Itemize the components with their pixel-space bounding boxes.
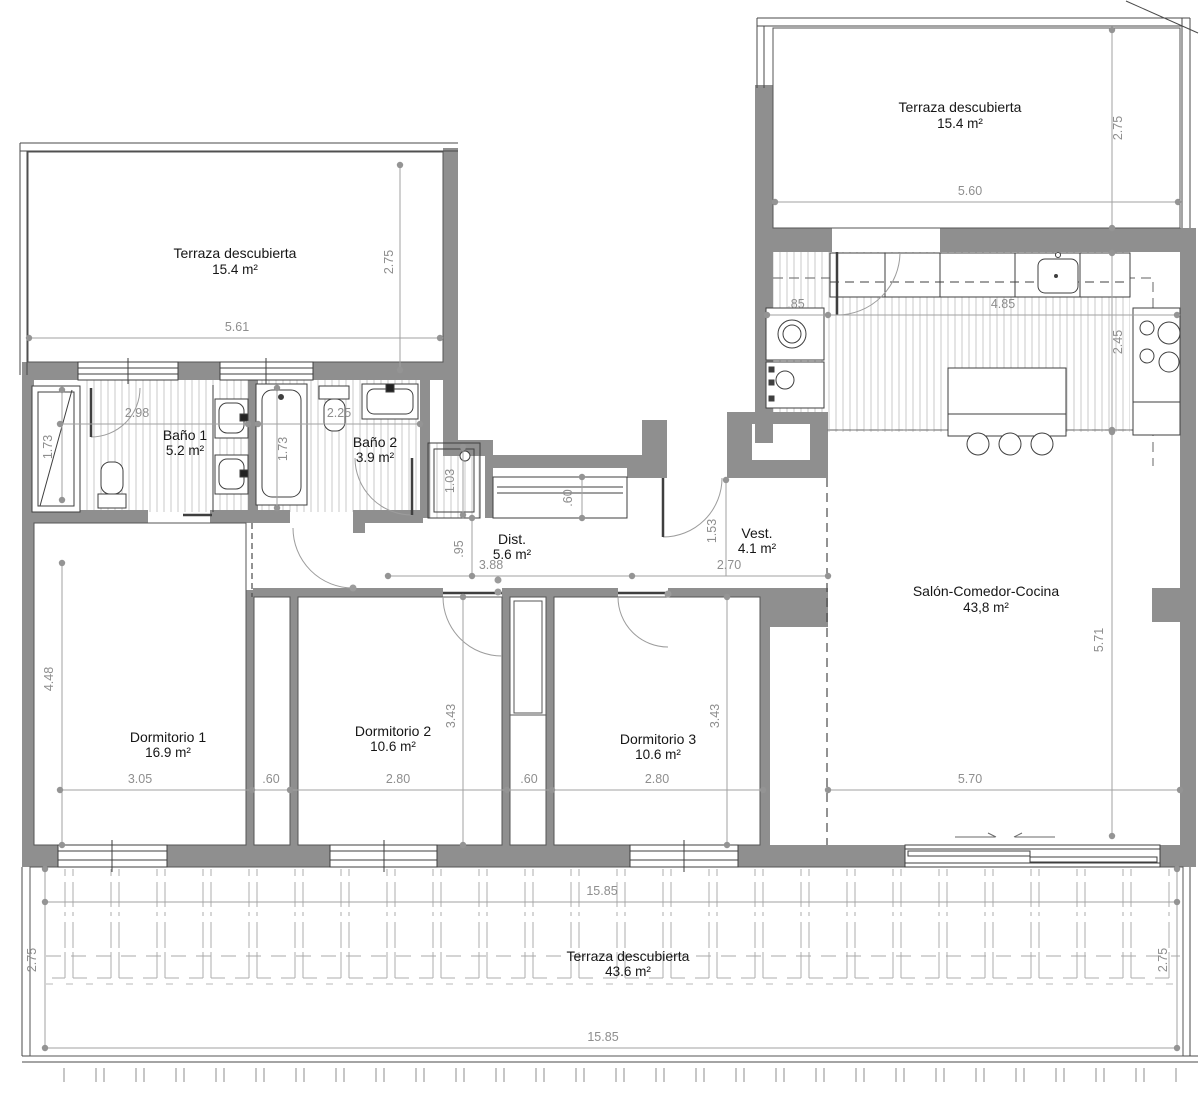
dim-label: 4.48	[42, 667, 56, 691]
dim-label: 15.85	[587, 1030, 618, 1044]
dorm3-door-arc	[618, 597, 668, 647]
svg-text:10.6 m²: 10.6 m²	[370, 739, 416, 754]
dim-label: 1.73	[41, 435, 55, 459]
slide-direction-arrows	[955, 833, 1055, 837]
dormitorio-1-outline	[34, 523, 246, 845]
svg-text:Baño 1: Baño 1	[163, 427, 208, 443]
dim-label: 2.75	[382, 250, 396, 274]
svg-text:Dormitorio 2: Dormitorio 2	[355, 723, 431, 739]
svg-text:5.2 m²: 5.2 m²	[166, 443, 205, 458]
room-label-bano-1: Baño 1 5.2 m²	[163, 427, 208, 458]
dim-label: 2.75	[1156, 948, 1170, 972]
dim-label: 1.53	[705, 519, 719, 543]
dryer-icon	[776, 371, 794, 389]
stool-icon	[967, 433, 989, 455]
dim-label: 2.70	[717, 558, 741, 572]
dim-label: 2.75	[25, 948, 39, 972]
floor-plan-drawing: 5.61 2.75 5.60 2.75 .85 4.85 2.45 2.98 1…	[0, 0, 1200, 1095]
room-label-bano-2: Baño 2 3.9 m²	[353, 434, 398, 465]
closet-2	[510, 597, 546, 845]
dim-label: 3.43	[444, 704, 458, 728]
dim-label: 5.61	[225, 320, 249, 334]
kitchen-counter	[830, 253, 1130, 298]
dim-label: .95	[452, 540, 466, 557]
dim-label: 2.25	[327, 406, 351, 420]
bano2-hall-door-arc	[293, 528, 353, 588]
stove	[1133, 308, 1180, 435]
dim-label: 5.60	[958, 184, 982, 198]
dim-label: 2.80	[386, 772, 410, 786]
room-label-dist: Dist. 5.6 m²	[493, 531, 532, 562]
dorm2-door-arc	[443, 597, 502, 656]
dim-label: 5.71	[1092, 628, 1106, 652]
svg-text:Vest.: Vest.	[741, 525, 772, 541]
window	[330, 840, 437, 872]
dim-label: 2.45	[1111, 330, 1125, 354]
svg-text:Baño 2: Baño 2	[353, 434, 398, 450]
laundry-appliances	[766, 308, 824, 408]
dim-label: 15.85	[586, 884, 617, 898]
svg-text:Terraza descubierta: Terraza descubierta	[567, 948, 690, 964]
room-label-vest: Vest. 4.1 m²	[738, 525, 777, 556]
room-label-salon: Salón-Comedor-Cocina 43,8 m²	[913, 583, 1060, 615]
room-label-terraza-top-right: Terraza descubierta 15.4 m²	[899, 99, 1022, 131]
svg-text:3.9 m²: 3.9 m²	[356, 450, 395, 465]
svg-text:Salón-Comedor-Cocina: Salón-Comedor-Cocina	[913, 583, 1060, 599]
dim-label: 1.73	[276, 437, 290, 461]
floor-plan-canvas: 5.61 2.75 5.60 2.75 .85 4.85 2.45 2.98 1…	[0, 0, 1200, 1095]
room-label-dormitorio-3: Dormitorio 3 10.6 m²	[620, 731, 696, 762]
dim-label: 1.03	[443, 469, 457, 493]
stool-icon	[999, 433, 1021, 455]
dim-label: 2.80	[645, 772, 669, 786]
closet-1	[254, 597, 290, 845]
stool-icon	[1031, 433, 1053, 455]
room-label-dormitorio-1: Dormitorio 1 16.9 m²	[130, 729, 206, 760]
dim-label: 2.98	[125, 406, 149, 420]
sliding-glass-door	[905, 833, 1160, 867]
svg-text:15.4 m²: 15.4 m²	[212, 262, 258, 277]
faucet-icon	[1056, 253, 1061, 258]
svg-text:43.6 m²: 43.6 m²	[605, 964, 651, 979]
svg-text:Dist.: Dist.	[498, 531, 526, 547]
dim-label: 5.70	[958, 772, 982, 786]
svg-text:Dormitorio 3: Dormitorio 3	[620, 731, 696, 747]
toilet-icon	[101, 462, 123, 494]
dim-label: 3.05	[128, 772, 152, 786]
burner-icon	[1158, 322, 1180, 344]
window	[78, 358, 178, 384]
dim-label: .85	[787, 297, 804, 311]
window	[58, 840, 167, 872]
room-label-dormitorio-2: Dormitorio 2 10.6 m²	[355, 723, 431, 754]
svg-text:43,8 m²: 43,8 m²	[963, 600, 1009, 615]
dim-label: .60	[561, 489, 575, 506]
svg-text:Terraza descubierta: Terraza descubierta	[174, 245, 297, 261]
dim-label: 4.85	[991, 297, 1015, 311]
svg-text:Terraza descubierta: Terraza descubierta	[899, 99, 1022, 115]
svg-text:10.6 m²: 10.6 m²	[635, 747, 681, 762]
dormitorio-2-outline	[298, 597, 502, 845]
hall-closet	[493, 477, 627, 518]
window	[630, 840, 738, 872]
svg-text:15.4 m²: 15.4 m²	[937, 116, 983, 131]
svg-text:16.9 m²: 16.9 m²	[145, 745, 191, 760]
svg-text:4.1 m²: 4.1 m²	[738, 541, 777, 556]
dim-label: 3.43	[708, 704, 722, 728]
burner-icon	[1159, 352, 1179, 372]
dim-label: .60	[262, 772, 279, 786]
dim-label: .60	[520, 772, 537, 786]
svg-text:Dormitorio 1: Dormitorio 1	[130, 729, 206, 745]
window	[220, 358, 313, 384]
room-label-terraza-top-left: Terraza descubierta 15.4 m²	[174, 245, 297, 277]
kitchen-island	[948, 368, 1066, 455]
burner-icon	[1140, 321, 1154, 335]
dormitorio-3-outline	[554, 597, 760, 845]
dim-label: 2.75	[1111, 116, 1125, 140]
toilet-icon	[319, 386, 349, 399]
burner-icon	[1140, 349, 1154, 363]
svg-text:5.6 m²: 5.6 m²	[493, 547, 532, 562]
closet-2-inner	[514, 601, 542, 713]
